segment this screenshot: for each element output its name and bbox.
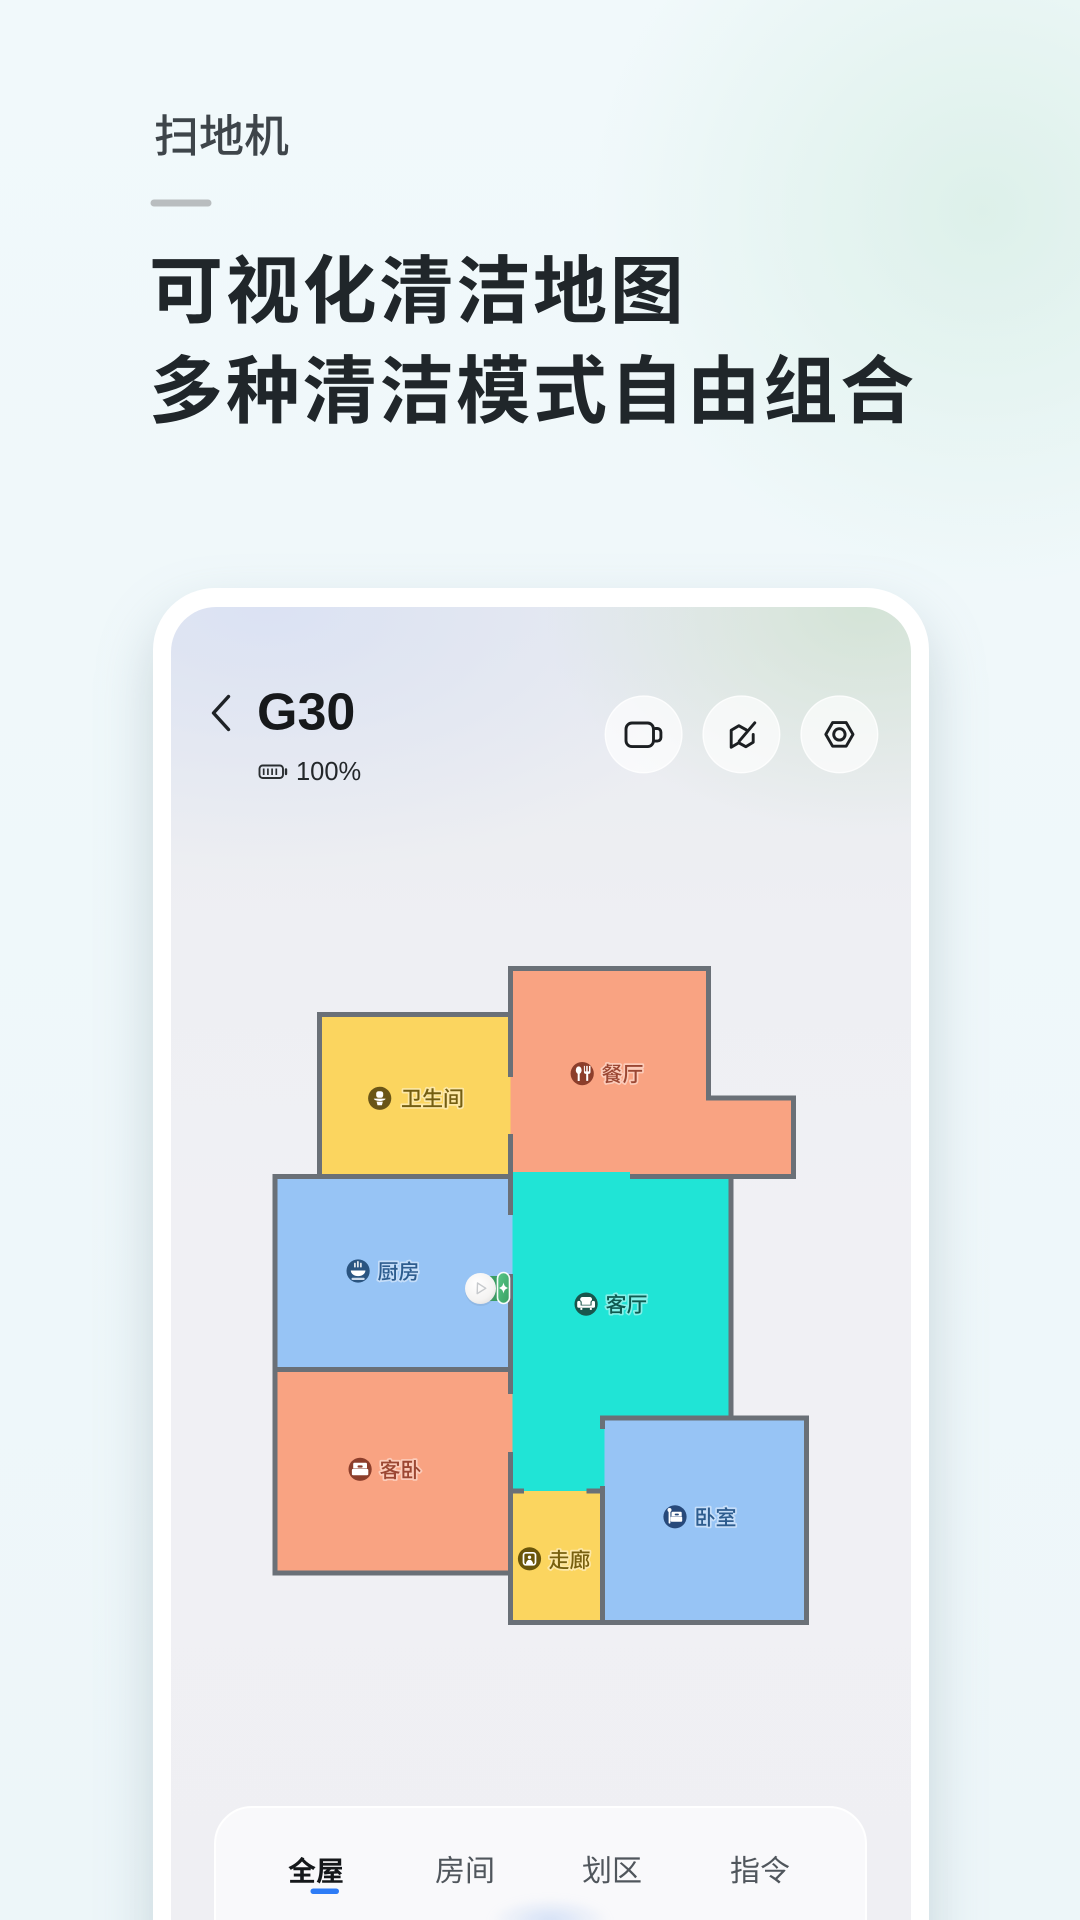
svg-text:100%: 100%: [296, 758, 361, 786]
svg-text:G30: G30: [257, 684, 355, 742]
